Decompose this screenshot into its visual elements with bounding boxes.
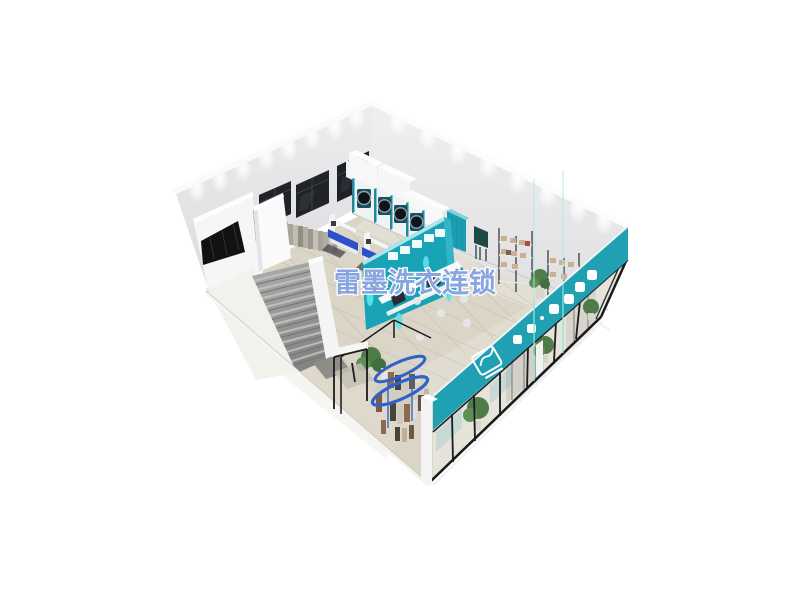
svg-text:雷墨洗衣连锁: 雷墨洗衣连锁 [334, 267, 496, 298]
